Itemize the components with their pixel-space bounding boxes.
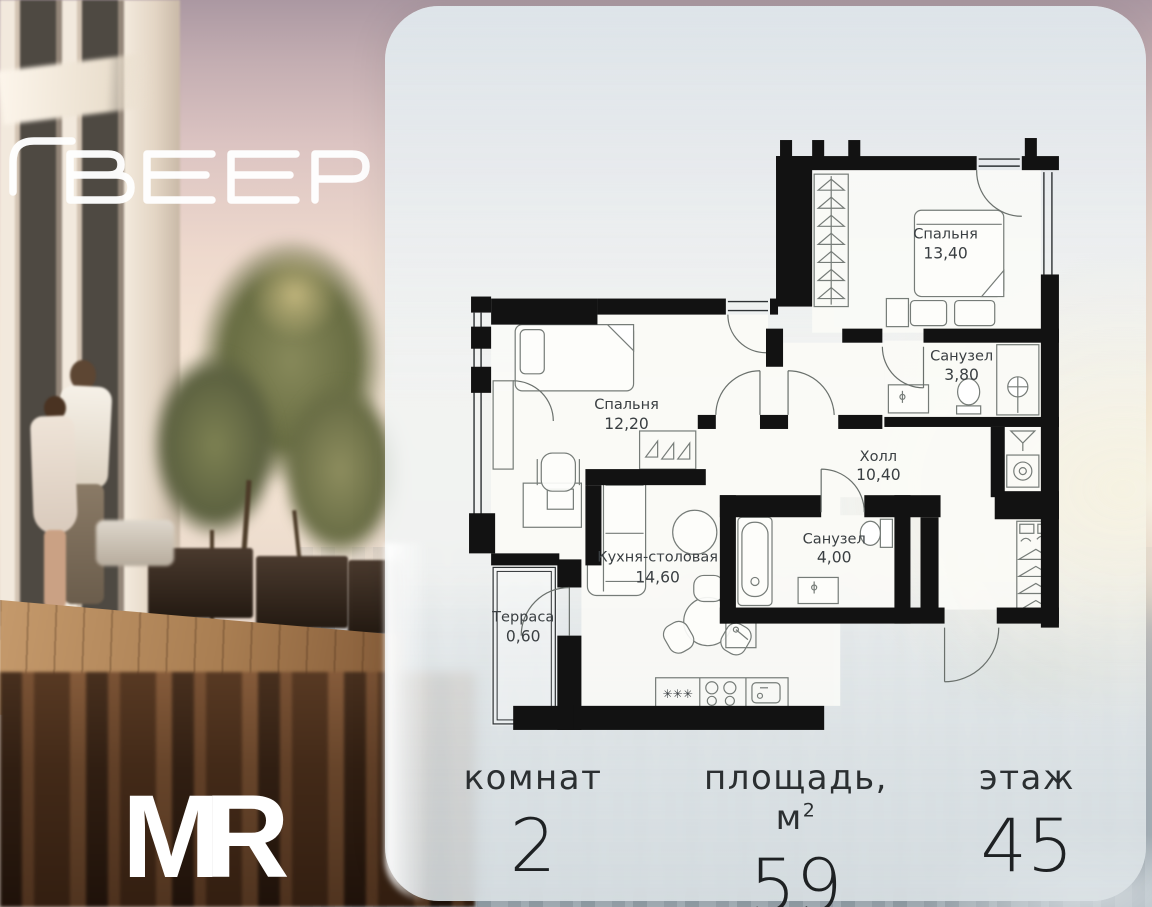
woman-dress	[30, 415, 78, 534]
planter-box	[256, 556, 348, 628]
stat-area: площадь, м2 59	[686, 758, 906, 907]
listing-image: MR	[0, 0, 1152, 907]
stat-floor-value: 45	[917, 804, 1137, 889]
floorplan-card: Спальня 13,40 Санузел 3,80 Спальня 12,20…	[385, 6, 1146, 901]
developer-logo-mr: MR	[122, 778, 302, 898]
burner-knobs-symbol: ✳✳✳	[663, 687, 693, 701]
stat-floor: этаж 45	[917, 758, 1137, 889]
lounge-chair	[96, 520, 174, 566]
stat-area-value: 59	[686, 844, 906, 907]
coffee-table	[673, 510, 717, 554]
squared-sign: 2	[803, 800, 817, 822]
room-name: Кухня-столовая	[597, 549, 718, 565]
room-name: Спальня	[913, 226, 978, 242]
room-area: 3,80	[944, 366, 979, 384]
room-name: Спальня	[594, 397, 659, 413]
room-name: Холл	[860, 449, 897, 465]
room-area: 14,60	[635, 568, 680, 586]
single-bed	[515, 325, 633, 391]
room-area: 12,20	[604, 415, 649, 433]
stat-rooms: комнат 2	[423, 758, 643, 889]
room-name: Терраса	[491, 610, 554, 626]
room-area: 13,40	[923, 244, 968, 262]
stat-floor-label: этаж	[917, 758, 1137, 798]
room-area: 10,40	[856, 466, 901, 484]
room-name: Санузел	[803, 531, 866, 547]
stat-rooms-label: комнат	[423, 758, 643, 798]
room-name: Санузел	[930, 349, 993, 365]
stat-rooms-value: 2	[423, 804, 643, 889]
stat-area-label: площадь, м2	[686, 758, 906, 838]
summary-stats: комнат 2 площадь, м2 59 этаж 45	[385, 758, 1146, 893]
woman-legs	[44, 530, 66, 608]
entrance-door	[945, 628, 999, 682]
room-area: 0,60	[506, 628, 541, 646]
logo-fan-arc	[13, 141, 72, 192]
couple-silhouette	[18, 352, 148, 632]
project-logo-veer	[4, 128, 382, 212]
room-area: 4,00	[817, 548, 852, 566]
developer-logo-text: MR	[122, 771, 274, 903]
floorplan-drawing: Спальня 13,40 Санузел 3,80 Спальня 12,20…	[457, 128, 1079, 750]
